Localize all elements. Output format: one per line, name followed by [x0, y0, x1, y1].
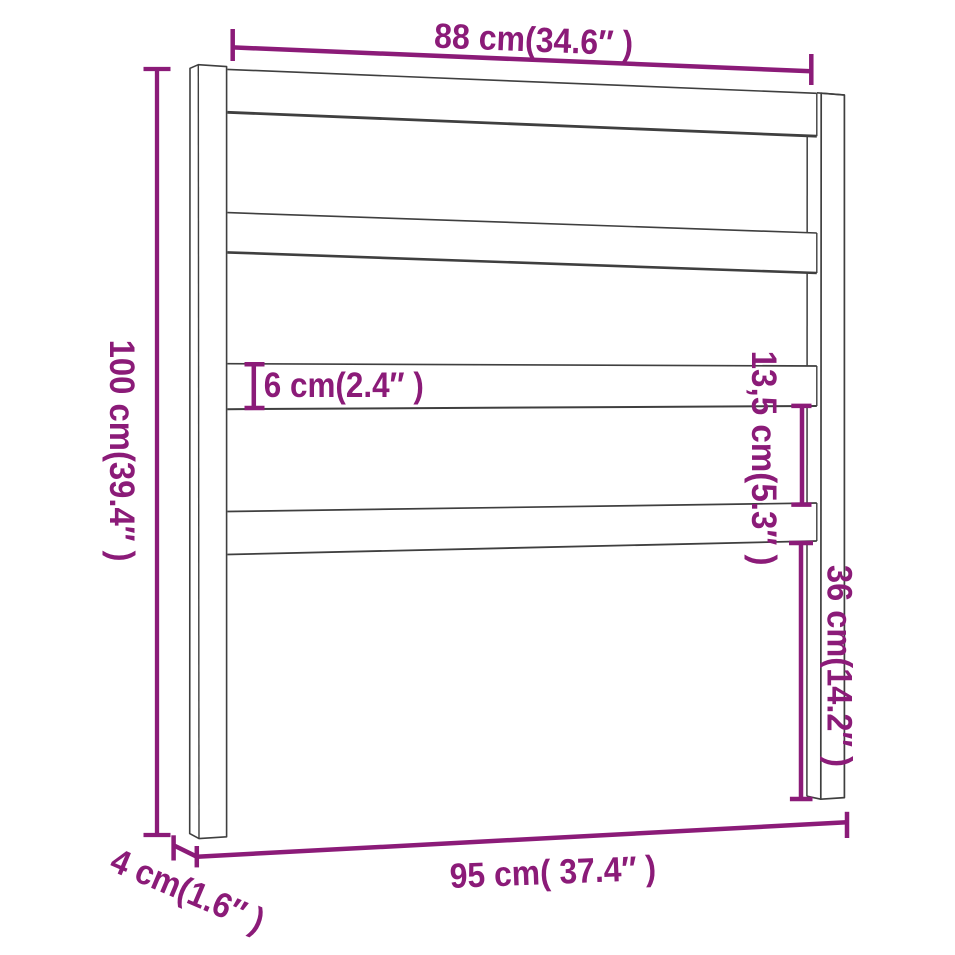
svg-text:88 cm(34.6″ ): 88 cm(34.6″ )	[433, 17, 633, 64]
svg-text:36 cm(14.2″ ): 36 cm(14.2″ )	[820, 565, 859, 767]
svg-text:13,5 cm(5.3″ ): 13,5 cm(5.3″ )	[744, 351, 783, 566]
svg-text:6 cm(2.4″ ): 6 cm(2.4″ )	[264, 366, 424, 405]
svg-text:100 cm(39.4″ ): 100 cm(39.4″ )	[102, 340, 141, 562]
svg-text:95 cm( 37.4″ ): 95 cm( 37.4″ )	[449, 849, 657, 896]
